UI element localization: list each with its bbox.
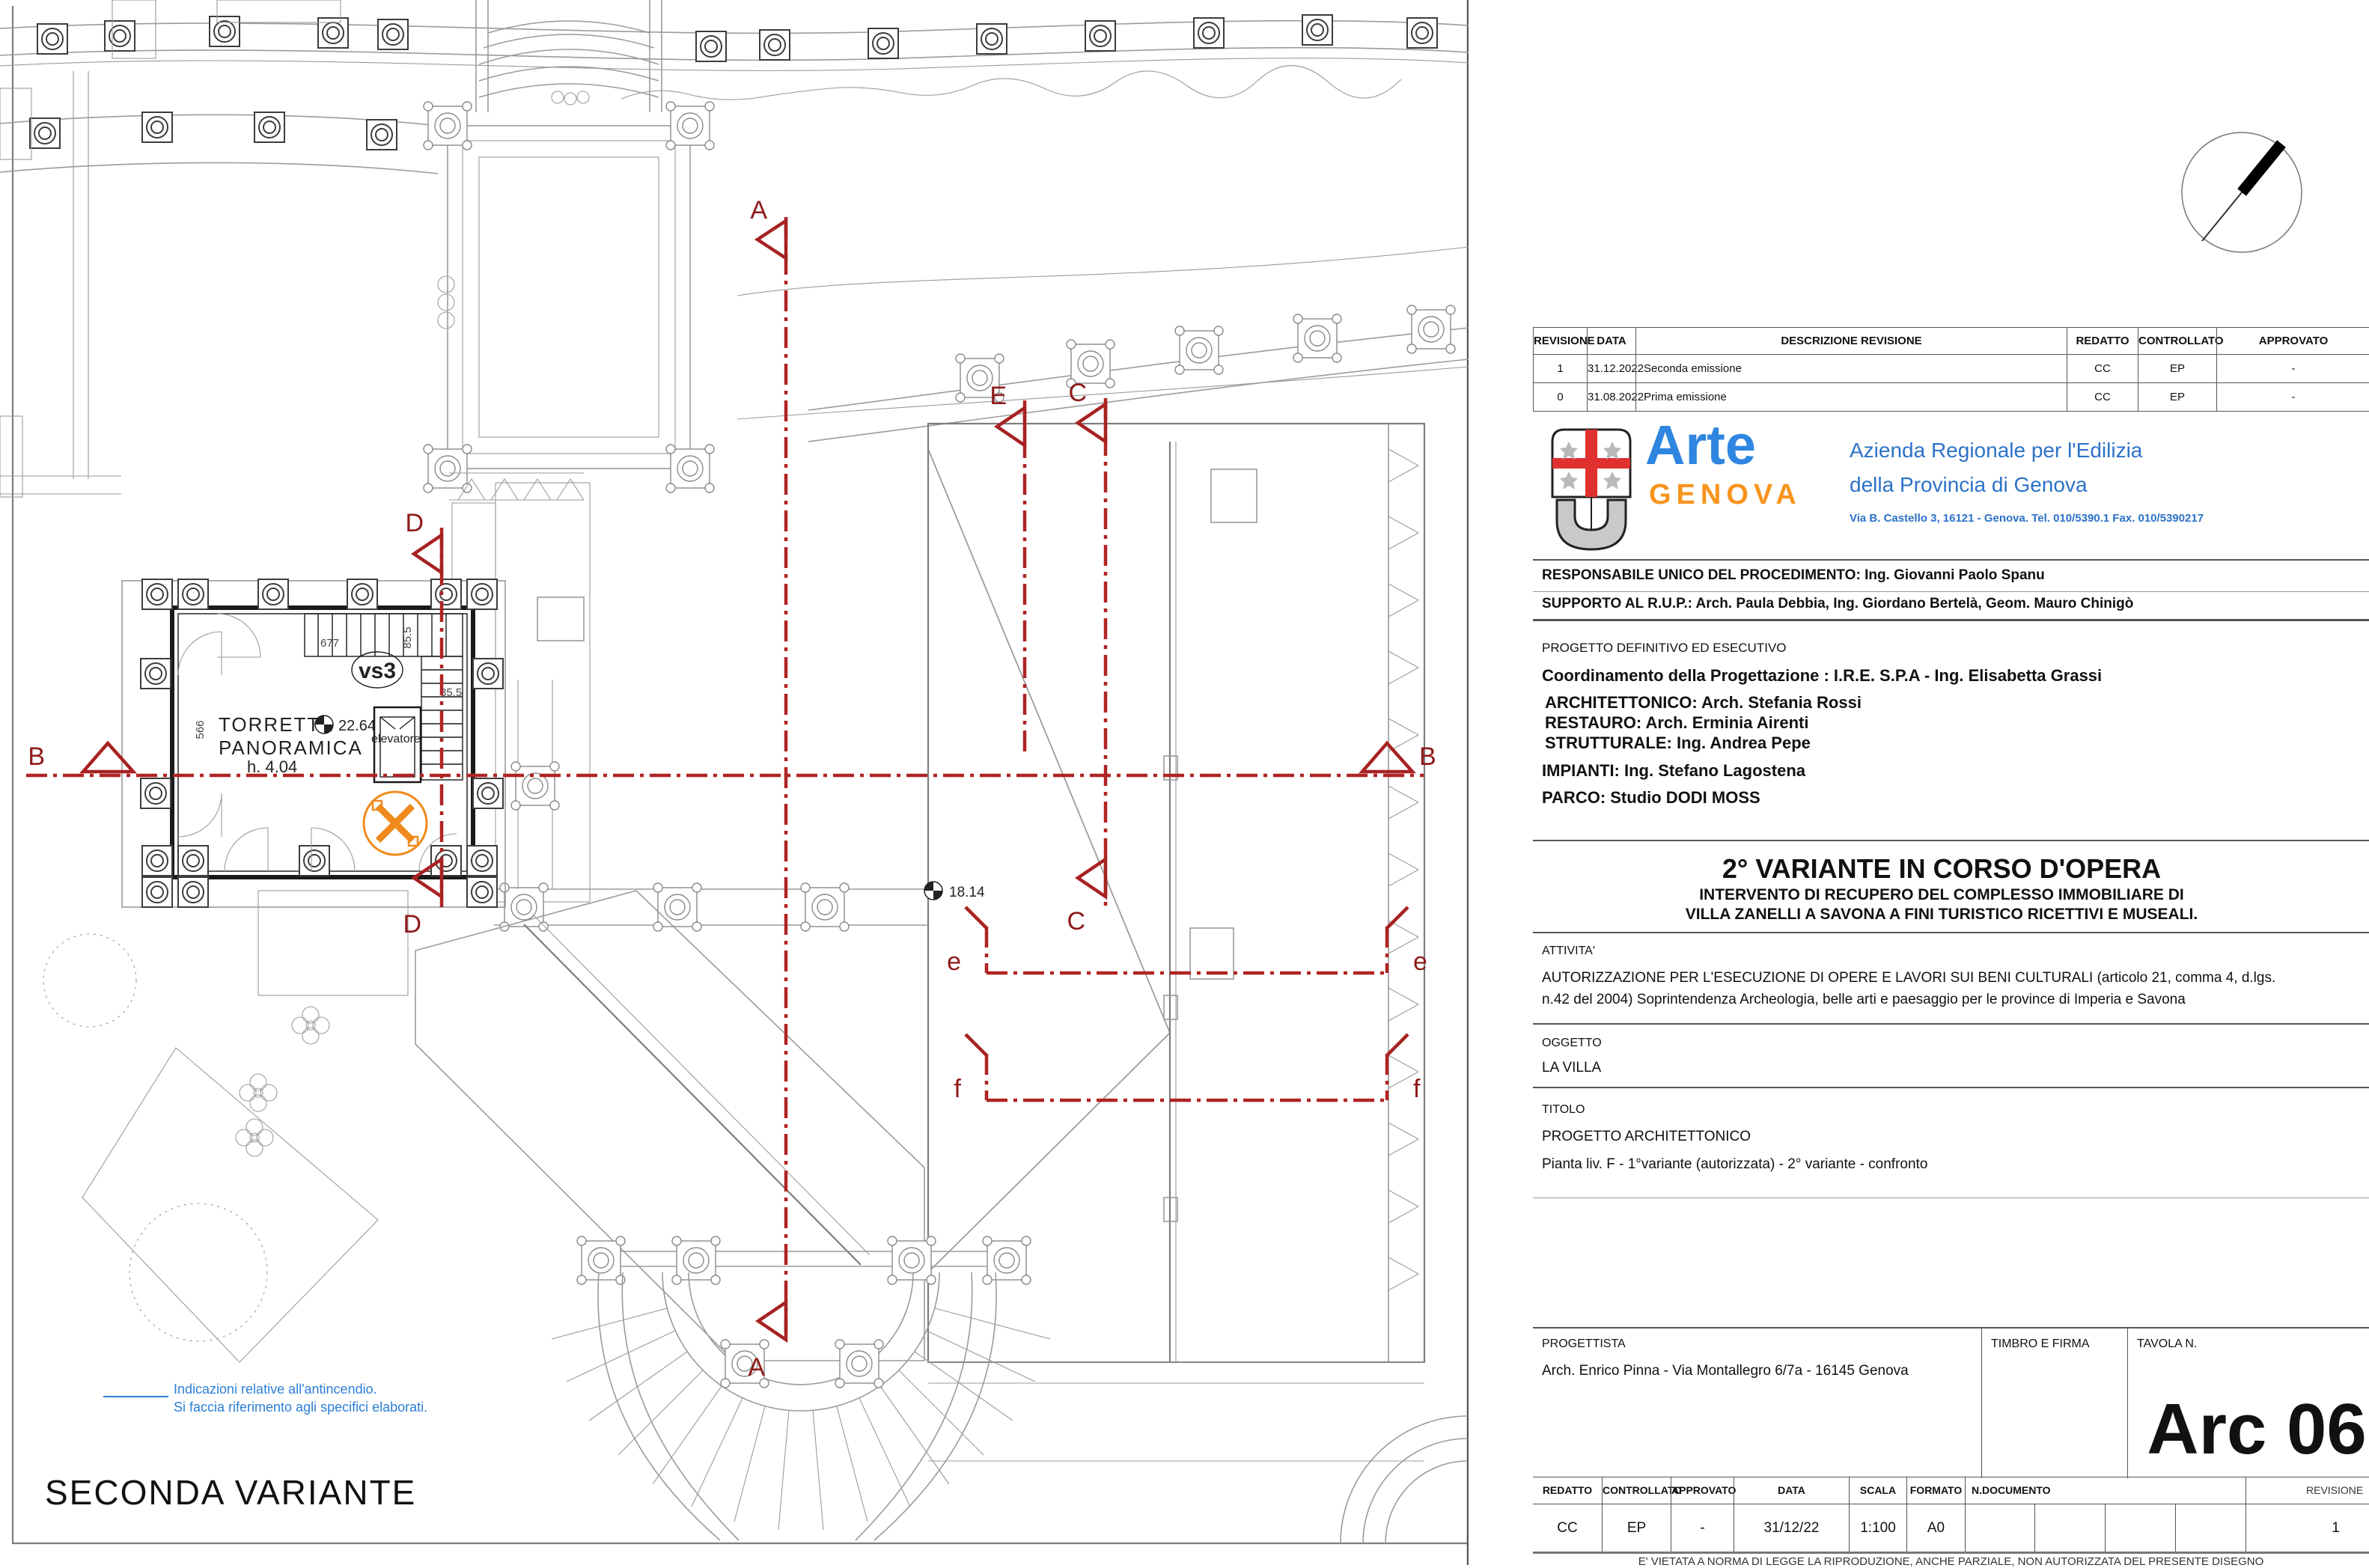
section-letter-a-top: A [750,196,767,225]
rev-redatto: CC [2067,383,2138,412]
room-name-line2: PANORAMICA [219,736,363,759]
rev-redatto: CC [2067,355,2138,383]
level-marker-tower: 22.64 [315,716,376,734]
dim-85-b: 85.5 [440,686,462,699]
tavola-number: Arc 06 [2137,1388,2369,1471]
revision-row: 1 31.12.2022 Seconda emissione CC EP - [1534,354,2369,383]
section-line-f: f f [954,1034,1421,1103]
section-letter-c-top: C [1068,379,1087,407]
variante-title: 2° VARIANTE IN CORSO D'OPERA [1533,853,2350,885]
grand-stair [552,1236,1050,1540]
terrain-lines [621,65,1469,419]
section-letter-e-right: e [1413,948,1427,976]
room-height-label: h. 4.04 [247,757,297,776]
section-letter-e-cap: E [990,382,1007,410]
progettista-box: PROGETTISTA Arch. Enrico Pinna - Via Mon… [1533,1327,2369,1478]
fire-legend: Indicazioni relative all'antincendio. Si… [103,1382,427,1415]
legend-line2: Si faccia riferimento agli specifici ela… [174,1400,427,1415]
rev-date: 31.08.2022 [1587,383,1635,412]
section-line-c: C C [1067,379,1106,936]
section-line-e-cap: E [990,382,1025,754]
rev-description: Seconda emissione [1635,355,2067,383]
liguria-shield-icon [1546,425,1636,554]
desc-col-header: DESCRIZIONE REVISIONE [1635,328,2067,354]
bt-h-data: DATA [1734,1477,1849,1504]
colonnade-band [808,305,1469,442]
floor-plan: vs3 TORRETTA PANORAMICA h. 4.04 22.64 67… [0,0,1469,1565]
section-letter-f-right: f [1413,1075,1421,1103]
bt-cell-empty [2175,1504,2245,1552]
date-col-header: DATA [1587,328,1635,354]
agency-block: Arte GENOVA Azienda Regionale per l'Edil… [1533,410,2369,559]
timbro-label: TIMBRO E FIRMA [1991,1337,2090,1351]
rev-controllato: EP [2138,355,2216,383]
bt-h-revisione: REVISIONE [2245,1477,2369,1504]
rev-approvato: - [2216,383,2369,412]
bt-h-controllato: CONTROLLATO [1602,1477,1671,1504]
bt-h-redatto: REDATTO [1533,1477,1602,1504]
section-letter-c-bottom: C [1067,907,1085,936]
bt-v-scala: 1:100 [1849,1504,1906,1552]
section-letter-a-bottom: A [748,1353,765,1382]
team-strutturale: STRUTTURALE: Ing. Andrea Pepe [1545,733,1811,753]
section-letter-b-right: B [1419,742,1436,771]
variant-title: SECONDA VARIANTE [45,1473,416,1512]
revision-row: 0 31.08.2022 Prima emissione CC EP - [1534,382,2369,412]
rev-number: 1 [1534,355,1587,383]
variante-sub1: INTERVENTO DI RECUPERO DEL COMPLESSO IMM… [1533,886,2350,904]
terrace-balustrade-left [0,71,438,497]
agency-name-line2: della Provincia di Genova [1850,473,2088,497]
bt-v-data: 31/12/22 [1734,1504,1849,1552]
section-letter-d-bottom: D [403,910,421,939]
title-block: REVISIONE DATA DESCRIZIONE REVISIONE RED… [1533,0,2369,1565]
dim-566: 566 [194,720,207,739]
dim-677: 677 [320,637,339,650]
terrace-balustrade-top [0,0,1469,70]
redatto-col-header: REDATTO [2067,328,2138,354]
team-parco: PARCO: Studio DODI MOSS [1542,788,1760,808]
agency-name-line1: Azienda Regionale per l'Edilizia [1850,439,2142,463]
lower-wing [43,891,924,1362]
bt-v-ndocumento [1965,1504,2034,1552]
section-line-e: e e [947,907,1427,976]
tavola-label: TAVOLA N. [2137,1337,2197,1351]
coordinamento: Coordinamento della Progettazione : I.R.… [1542,666,2102,686]
svg-text:18.14: 18.14 [949,885,985,900]
bottom-table: REDATTO CONTROLLATO APPROVATO DATA SCALA… [1533,1477,2369,1554]
loggia-band [494,680,928,931]
bt-v-revisione: 1 [2245,1504,2369,1552]
elevator-label: elevatore [371,733,421,745]
titolo-line1: PROGETTO ARCHITETTONICO [1542,1129,1751,1145]
logo-city: GENOVA [1649,479,1802,511]
dim-85-a: 85.5 [401,626,414,648]
rev-number: 0 [1534,383,1587,412]
main-roof [928,424,1468,1543]
rev-controllato: EP [2138,383,2216,412]
legend-line1: Indicazioni relative all'antincendio. [174,1382,377,1397]
revision-table: REVISIONE DATA DESCRIZIONE REVISIONE RED… [1533,327,2369,412]
rev-date: 31.12.2022 [1587,355,1635,383]
stair-code-label: vs3 [359,659,396,683]
section-line-a: A A [748,196,786,1382]
progettista-value: Arch. Enrico Pinna - Via Montallegro 6/7… [1542,1363,1909,1379]
attivita-label: ATTIVITA' [1542,945,1595,958]
team-impianti: IMPIANTI: Ing. Stefano Lagostena [1542,761,1805,781]
progettista-label: PROGETTISTA [1542,1337,1626,1351]
section-letter-f-left: f [954,1075,962,1103]
bt-cell-empty [2034,1504,2105,1552]
oggetto-value: LA VILLA [1542,1060,1601,1076]
bt-h-approvato: APPROVATO [1671,1477,1734,1504]
drawing-sheet: { "colors": { "section_red": "#A82222", … [0,0,2369,1565]
progetto-fase: PROGETTO DEFINITIVO ED ESECUTIVO [1542,641,1787,656]
bt-v-redatto: CC [1533,1504,1602,1552]
bt-h-ndocumento: N.DOCUMENTO [1965,1477,2245,1504]
section-letter-b-left: B [28,742,45,771]
team-restauro: RESTAURO: Arch. Erminia Airenti [1545,713,1808,733]
titolo-line2: Pianta liv. F - 1°variante (autorizzata)… [1542,1156,1927,1173]
logo-word: Arte [1645,413,1756,477]
disclaimer: E' VIETATA A NORMA DI LEGGE LA RIPRODUZI… [1533,1555,2369,1568]
controllato-col-header: CONTROLLATO [2138,328,2216,354]
bt-v-controllato: EP [1602,1504,1671,1552]
bt-cell-empty [2105,1504,2175,1552]
section-letter-e-left: e [947,948,961,976]
bt-v-approvato: - [1671,1504,1734,1552]
section-letter-d-top: D [405,509,424,537]
attivita-line1: AUTORIZZAZIONE PER L'ESECUZIONE DI OPERE… [1542,970,2275,986]
titolo-label: TITOLO [1542,1103,1585,1117]
rev-description: Prima emissione [1635,383,2067,412]
svg-text:22.64: 22.64 [338,718,376,734]
rev-approvato: - [2216,355,2369,383]
oggetto-label: OGGETTO [1542,1037,1602,1050]
bt-v-formato: A0 [1906,1504,1965,1552]
level-marker-terrace: 18.14 [924,882,985,900]
attivita-line2: n.42 del 2004) Soprintendenza Archeologi… [1542,992,2186,1008]
bt-h-scala: SCALA [1849,1477,1906,1504]
team-architettonico: ARCHITETTONICO: Arch. Stefania Rossi [1545,693,1862,713]
tower: vs3 TORRETTA PANORAMICA h. 4.04 22.64 67… [122,579,505,907]
rev-col-header: REVISIONE [1534,328,1587,354]
responsabile-row: RESPONSABILE UNICO DEL PROCEDIMENTO: Ing… [1542,567,2365,584]
variante-sub2: VILLA ZANELLI A SAVONA A FINI TURISTICO … [1533,906,2350,924]
bt-h-formato: FORMATO [1906,1477,1965,1504]
supporto-row: SUPPORTO AL R.U.P.: Arch. Paula Debbia, … [1542,596,2365,612]
agency-address: Via B. Castello 3, 16121 - Genova. Tel. … [1850,512,2204,525]
approvato-col-header: APPROVATO [2216,328,2369,354]
